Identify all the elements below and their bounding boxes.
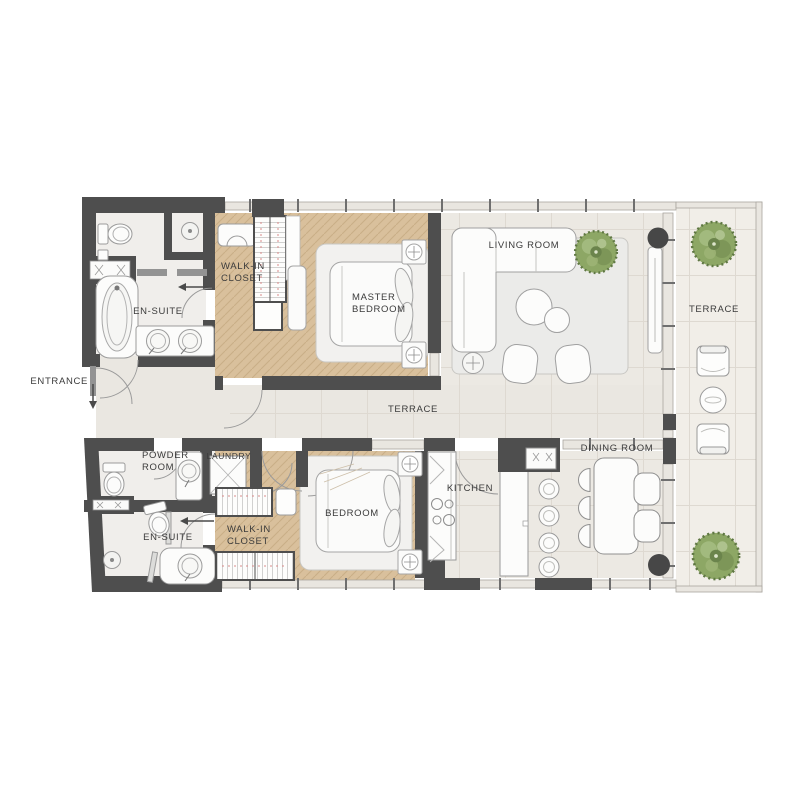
toilet [103, 463, 125, 496]
dining-table [594, 458, 638, 554]
nightstand [398, 452, 422, 476]
bathtub [96, 276, 138, 358]
vanity [160, 548, 215, 584]
bed [316, 464, 403, 552]
terrace-chair [697, 346, 729, 376]
coffee-table [545, 308, 570, 333]
plant [693, 533, 739, 579]
nightstand [398, 550, 422, 574]
floor-lamp [463, 353, 484, 374]
lounge-chair [501, 343, 539, 385]
wardrobe [216, 488, 272, 516]
island-sink-unit [498, 438, 560, 472]
terrace-furniture [697, 346, 729, 454]
terrace-chair [697, 424, 729, 454]
floor-plan [0, 0, 800, 800]
sideboard [648, 247, 662, 353]
terrace-table [700, 387, 726, 413]
wall-niche-lower [88, 496, 134, 514]
bed [330, 262, 416, 346]
column [648, 228, 669, 249]
column [648, 554, 670, 576]
dining-armchair [634, 473, 660, 505]
dining-armchair [634, 510, 660, 542]
sink [176, 452, 202, 500]
nightstand [402, 342, 426, 368]
stool [276, 489, 296, 515]
shower [182, 223, 199, 240]
double-vanity [136, 326, 214, 356]
lounge-chair [554, 343, 592, 385]
plant [575, 231, 617, 273]
nightstand [402, 240, 426, 264]
bench [288, 266, 306, 330]
plant [692, 222, 736, 266]
floor-plan-canvas: ENTRANCE EN-SUITE WALK-IN CLOSET MASTER … [0, 0, 800, 800]
